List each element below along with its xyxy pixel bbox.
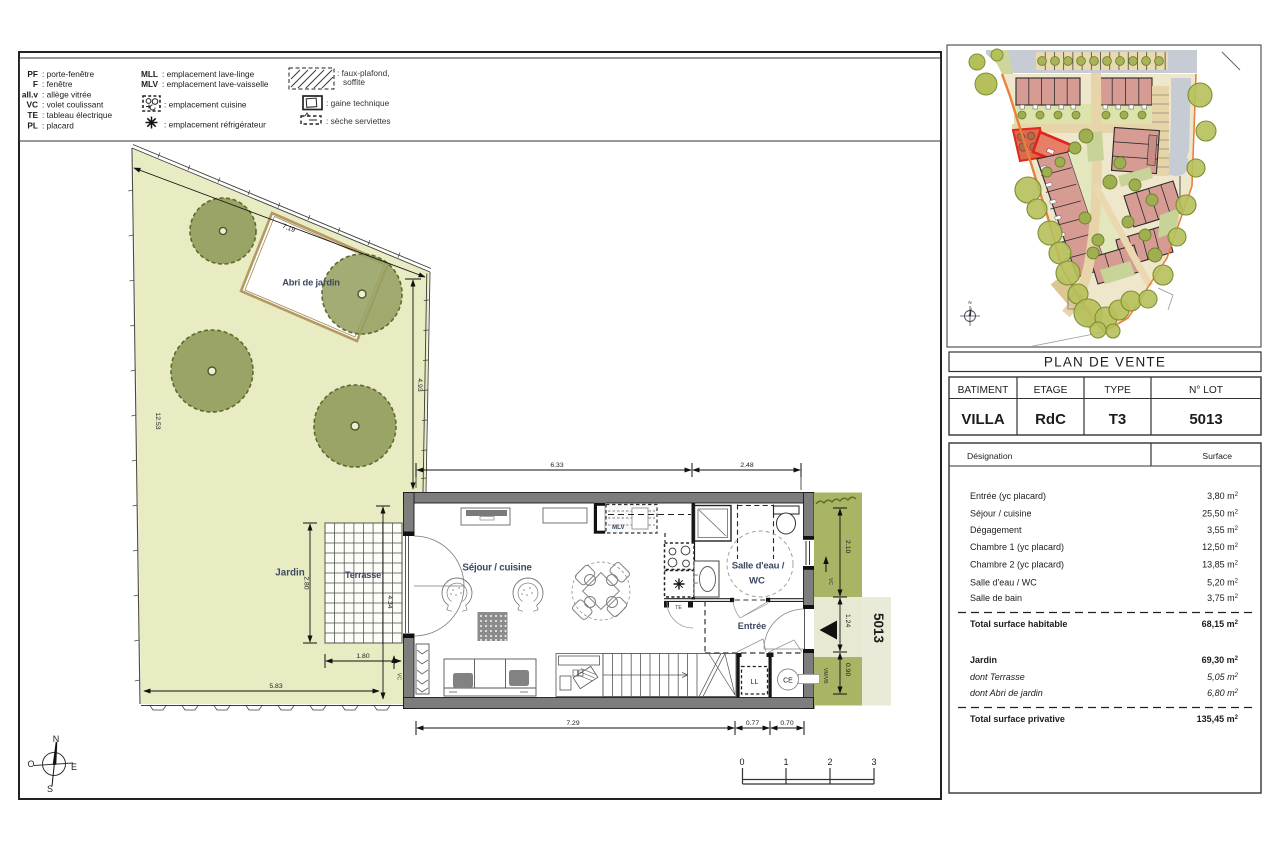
svg-text:Chambre 1 (yc placard): Chambre 1 (yc placard) bbox=[970, 542, 1064, 552]
svg-text:MLV: MLV bbox=[141, 79, 158, 89]
svg-text:4.93: 4.93 bbox=[416, 378, 423, 391]
svg-text:135,45 m2: 135,45 m2 bbox=[1197, 714, 1239, 724]
svg-text:Séjour / cuisine: Séjour / cuisine bbox=[970, 509, 1032, 519]
svg-text:RdC: RdC bbox=[1035, 411, 1066, 428]
svg-text:Surface: Surface bbox=[1202, 451, 1232, 461]
svg-text:6.33: 6.33 bbox=[550, 462, 563, 469]
svg-text:0.77: 0.77 bbox=[746, 720, 759, 727]
svg-text:: emplacement lave-vaisselle: : emplacement lave-vaisselle bbox=[162, 79, 269, 89]
svg-text:all.v: all.v bbox=[22, 90, 39, 100]
svg-text:TE: TE bbox=[675, 605, 682, 611]
svg-text:2.80: 2.80 bbox=[303, 576, 310, 589]
svg-text:F: F bbox=[33, 79, 38, 89]
svg-text:T3: T3 bbox=[1109, 411, 1127, 428]
svg-text:Jardin: Jardin bbox=[970, 655, 997, 665]
svg-text:5.83: 5.83 bbox=[269, 683, 282, 690]
svg-text:: emplacement lave-linge: : emplacement lave-linge bbox=[162, 69, 255, 79]
svg-text:Désignation: Désignation bbox=[967, 451, 1013, 461]
svg-text:MLL: MLL bbox=[141, 69, 158, 79]
svg-text:2.10: 2.10 bbox=[844, 540, 851, 553]
svg-text:2: 2 bbox=[827, 757, 832, 767]
svg-text:: porte-fenêtre: : porte-fenêtre bbox=[42, 69, 95, 79]
svg-text:BATIMENT: BATIMENT bbox=[958, 385, 1009, 396]
svg-text:0: 0 bbox=[739, 757, 744, 767]
svg-text:25,50 m2: 25,50 m2 bbox=[1202, 509, 1239, 519]
svg-text:13,85 m2: 13,85 m2 bbox=[1202, 560, 1239, 570]
svg-text:: gaine technique: : gaine technique bbox=[326, 98, 390, 108]
svg-text:: fenêtre: : fenêtre bbox=[42, 79, 73, 89]
svg-text:: emplacement cuisine: : emplacement cuisine bbox=[164, 100, 247, 110]
svg-text:PLAN DE VENTE: PLAN DE VENTE bbox=[1044, 355, 1166, 370]
svg-text:E: E bbox=[71, 762, 77, 772]
svg-text:6,80 m2: 6,80 m2 bbox=[1207, 688, 1239, 698]
svg-text:Total surface privative: Total surface privative bbox=[970, 714, 1065, 724]
svg-text:Séjour / cuisine: Séjour / cuisine bbox=[462, 563, 532, 574]
svg-text:dont Terrasse: dont Terrasse bbox=[970, 672, 1025, 682]
svg-text:0.70: 0.70 bbox=[780, 720, 793, 727]
svg-text:Entrée (yc placard): Entrée (yc placard) bbox=[970, 491, 1046, 501]
svg-text:VC: VC bbox=[396, 673, 402, 680]
svg-text:WC: WC bbox=[749, 576, 765, 587]
svg-text:69,30 m2: 69,30 m2 bbox=[1202, 655, 1239, 665]
svg-text:5013: 5013 bbox=[1189, 411, 1222, 428]
svg-text:5,20 m2: 5,20 m2 bbox=[1207, 578, 1239, 588]
svg-text:VILLA: VILLA bbox=[961, 411, 1004, 428]
svg-text:: placard: : placard bbox=[42, 121, 74, 131]
svg-text:Terrasse: Terrasse bbox=[345, 570, 381, 580]
svg-text:MLV: MLV bbox=[612, 524, 625, 531]
svg-text:Chambre 2 (yc placard): Chambre 2 (yc placard) bbox=[970, 560, 1064, 570]
svg-text:VC: VC bbox=[26, 100, 38, 110]
svg-text:Entrée: Entrée bbox=[738, 621, 767, 631]
svg-text:: sèche serviettes: : sèche serviettes bbox=[326, 116, 391, 126]
svg-text:1: 1 bbox=[783, 757, 788, 767]
svg-text:0.90: 0.90 bbox=[844, 663, 851, 676]
svg-text:1.80: 1.80 bbox=[356, 653, 369, 660]
svg-text:Jardin: Jardin bbox=[275, 568, 304, 579]
svg-text:VM/VB: VM/VB bbox=[822, 668, 828, 684]
svg-text:5,05 m2: 5,05 m2 bbox=[1207, 672, 1239, 682]
svg-text:dont Abri de jardin: dont Abri de jardin bbox=[970, 688, 1043, 698]
svg-text:S: S bbox=[47, 784, 53, 794]
svg-text:: volet coulissant: : volet coulissant bbox=[42, 100, 104, 110]
svg-text:3,55 m2: 3,55 m2 bbox=[1207, 525, 1239, 535]
svg-text:PF: PF bbox=[27, 69, 38, 79]
svg-text:12.53: 12.53 bbox=[154, 412, 161, 429]
svg-text:soffite: soffite bbox=[343, 77, 365, 87]
svg-text:: emplacement réfrigérateur: : emplacement réfrigérateur bbox=[164, 120, 266, 130]
svg-text:Abri de jardin: Abri de jardin bbox=[282, 277, 340, 288]
svg-text:TE: TE bbox=[27, 110, 38, 120]
svg-text:Salle d'eau / WC: Salle d'eau / WC bbox=[970, 578, 1037, 588]
svg-text:3: 3 bbox=[871, 757, 876, 767]
svg-text:: allège vitrée: : allège vitrée bbox=[42, 90, 92, 100]
svg-text:CE: CE bbox=[783, 678, 793, 685]
svg-text:N° LOT: N° LOT bbox=[1189, 385, 1223, 396]
svg-text:LL: LL bbox=[751, 679, 759, 686]
svg-text:7.29: 7.29 bbox=[566, 720, 579, 727]
svg-text:O: O bbox=[27, 759, 34, 769]
svg-text:Total surface habitable: Total surface habitable bbox=[970, 619, 1067, 629]
svg-text:Dégagement: Dégagement bbox=[970, 525, 1022, 535]
svg-text:5013: 5013 bbox=[871, 613, 886, 644]
svg-text:PL: PL bbox=[27, 121, 38, 131]
svg-text:1.24: 1.24 bbox=[844, 614, 851, 627]
svg-text:TYPE: TYPE bbox=[1104, 385, 1131, 396]
svg-text:12,50 m2: 12,50 m2 bbox=[1202, 542, 1239, 552]
svg-text:3,80 m2: 3,80 m2 bbox=[1207, 491, 1239, 501]
svg-text:: tableau électrique: : tableau électrique bbox=[42, 110, 112, 120]
svg-text:2.48: 2.48 bbox=[740, 462, 753, 469]
svg-text:4.34: 4.34 bbox=[386, 595, 393, 608]
svg-text:VC: VC bbox=[827, 578, 833, 585]
svg-text:68,15 m2: 68,15 m2 bbox=[1202, 619, 1239, 629]
svg-text:N: N bbox=[968, 300, 971, 305]
svg-text:N: N bbox=[53, 734, 60, 744]
svg-text:ETAGE: ETAGE bbox=[1034, 385, 1068, 396]
svg-text:Salle de bain: Salle de bain bbox=[970, 593, 1022, 603]
svg-text:3,75 m2: 3,75 m2 bbox=[1207, 593, 1239, 603]
svg-text:Salle d'eau /: Salle d'eau / bbox=[732, 561, 785, 572]
